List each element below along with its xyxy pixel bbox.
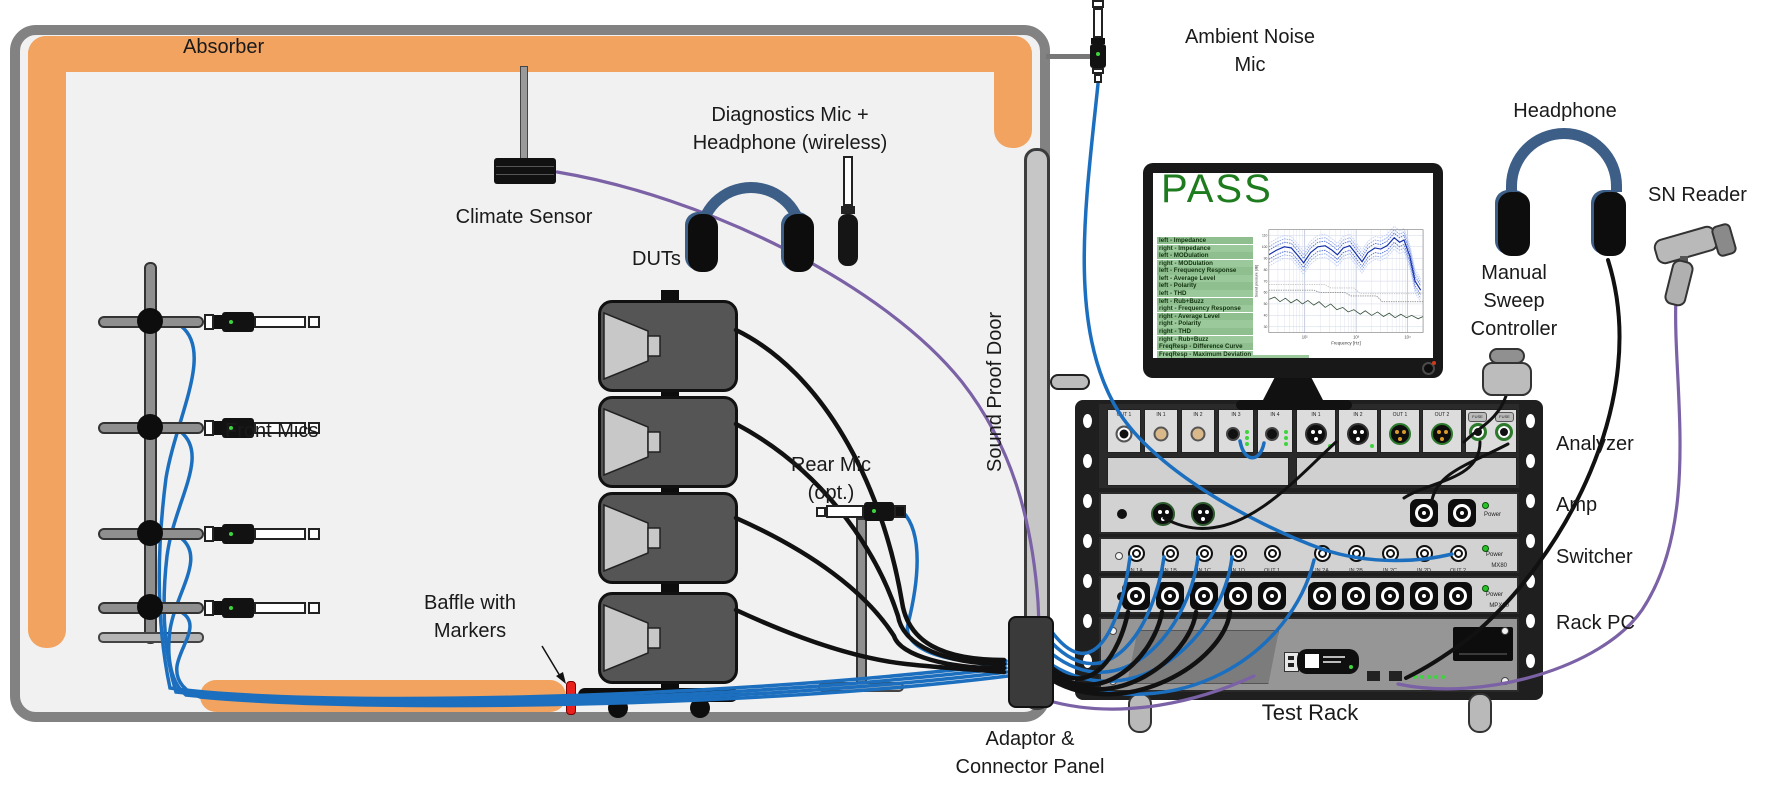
climate-sensor-label: Climate Sensor (440, 204, 608, 230)
baffle-label-line1: Baffle with (408, 590, 532, 616)
amp-power-knob (1117, 509, 1127, 519)
dut-speaker-4 (598, 592, 738, 684)
analyzer-module-group-left: OUT 1 IN 1 IN 2 IN 3 IN 4 (1107, 409, 1293, 453)
rack-foot-right (1468, 693, 1492, 733)
svg-text:30: 30 (1264, 325, 1268, 329)
switcher-b-power-label: Power (1486, 592, 1503, 598)
switcher-a-power-label: Power (1486, 552, 1503, 558)
bnc-port-strip: IN 1AIN 1BIN 1CIN 1DOUT 1IN 2AIN 2BIN 2C… (1119, 545, 1475, 574)
analyzer-blank-plate (1107, 457, 1289, 486)
switcher-a-model: MX80 (1491, 563, 1507, 569)
operator-headphone-left-cup (1498, 192, 1530, 256)
speakon-connector (1342, 582, 1370, 610)
switcher-port: OUT 1 (1255, 545, 1289, 574)
monitor-stand-neck (1262, 378, 1324, 402)
front-mic-3 (98, 519, 328, 549)
adaptor-label-line2: Connector Panel (930, 754, 1130, 780)
front-mic-4 (98, 593, 328, 623)
sn-reader-label: SN Reader (1648, 182, 1747, 208)
result-chart: 1101009080706050403010²10³10⁴Frequency [… (1253, 225, 1429, 355)
fuse-label: FUSE (1468, 412, 1487, 422)
switcher-port-label: OUT 2 (1441, 568, 1475, 574)
switcher-port: IN 1D (1221, 545, 1255, 574)
pass-status: PASS (1161, 173, 1273, 212)
bnc-connector (1314, 545, 1331, 562)
switcher-b-power-led (1482, 585, 1489, 592)
diagnostics-headphone-left-cup (688, 214, 718, 272)
analyzer-module-out1: OUT 1 (1107, 409, 1141, 453)
ambient-mic-bracket (1046, 54, 1092, 59)
climate-sensor-box (494, 158, 556, 184)
analyzer-label: Analyzer (1556, 431, 1634, 457)
front-mic-stand-foot (98, 632, 204, 643)
ambient-mic-label-line1: Ambient Noise (1160, 24, 1340, 50)
result-monitor: PASS left - Impedanceright - Impedancele… (1143, 163, 1443, 378)
duts-label: DUTs (632, 246, 681, 272)
monitor-screen: PASS left - Impedanceright - Impedancele… (1153, 173, 1433, 358)
usb-dongle (1297, 649, 1359, 674)
speakon-connector (1156, 582, 1184, 610)
speakon-connector (1224, 582, 1252, 610)
analyzer-row: OUT 1 IN 1 IN 2 IN 3 IN 4 (1099, 404, 1519, 488)
switcher-port: IN 1B (1153, 545, 1187, 574)
svg-text:60: 60 (1264, 291, 1268, 295)
amp-speakon-2 (1448, 499, 1476, 527)
fuse-label: FUSE (1495, 412, 1514, 422)
diagnostics-headphone-right-cup (784, 214, 814, 272)
test-setup-diagram: Absorber Sound Proof Door Front Mics Cli… (0, 0, 1783, 810)
pc-port (1389, 671, 1402, 681)
baffle-marker (566, 681, 576, 715)
svg-text:90: 90 (1264, 256, 1268, 260)
svg-text:100: 100 (1262, 245, 1268, 249)
analyzer-xlr-in2: IN 2 (1338, 409, 1378, 453)
manual-label-line2: Sweep (1440, 288, 1588, 314)
analyzer-module-in4: IN 4 (1257, 409, 1293, 453)
svg-text:110: 110 (1262, 234, 1267, 238)
analyzer-module-group-xlr: IN 1 IN 2 OUT 1 (1296, 409, 1462, 453)
speakon-connector (1308, 582, 1336, 610)
svg-text:Frequency [Hz]: Frequency [Hz] (1331, 340, 1360, 345)
switcher-row-bnc: IN 1AIN 1BIN 1CIN 1DOUT 1IN 2AIN 2BIN 2C… (1099, 537, 1519, 573)
svg-text:40: 40 (1264, 314, 1268, 318)
speakon-connector (1410, 582, 1438, 610)
svg-text:10³: 10³ (1353, 334, 1360, 339)
front-mics-label: Front Mics (225, 418, 318, 444)
manual-label-line3: Controller (1440, 316, 1588, 342)
bnc-connector (1162, 545, 1179, 562)
bnc-connector (1382, 545, 1399, 562)
operator-headphone-icon (1506, 128, 1622, 192)
amp-power-label: Power (1484, 512, 1501, 518)
bnc-connector (1348, 545, 1365, 562)
absorber-right-corner (994, 36, 1032, 148)
front-mic-1 (98, 307, 328, 337)
bnc-connector (1230, 545, 1247, 562)
amp-row: Power (1099, 492, 1519, 534)
analyzer-xlr-in1: IN 1 (1296, 409, 1336, 453)
amp-speakon-1 (1410, 499, 1438, 527)
headphone-label: Headphone (1495, 98, 1635, 124)
switcher-port-label: OUT 1 (1255, 568, 1289, 574)
manual-sweep-controller-body (1482, 362, 1532, 396)
pc-port (1367, 671, 1380, 681)
switcher-port: IN 2B (1339, 545, 1373, 574)
ambient-noise-mic-icon (1088, 0, 1108, 86)
bnc-connector (1196, 545, 1213, 562)
bnc-connector (1264, 545, 1281, 562)
switcher-port: IN 1C (1187, 545, 1221, 574)
switcher-port-label: IN 1D (1221, 568, 1255, 574)
switcher-port: IN 2D (1407, 545, 1441, 574)
manual-label-line1: Manual (1440, 260, 1588, 286)
pc-recess (1127, 630, 1279, 684)
switcher-port: OUT 2 (1441, 545, 1475, 574)
switcher-port: IN 2C (1373, 545, 1407, 574)
adaptor-label-line1: Adaptor & (930, 726, 1130, 752)
ambient-mic-label-line2: Mic (1160, 52, 1340, 78)
switcher-port-label: IN 1C (1187, 568, 1221, 574)
monitor-stand-base (1236, 400, 1352, 410)
baffle-label-line2: Markers (408, 618, 532, 644)
door-label: Sound Proof Door (984, 232, 1007, 472)
dut-speaker-1 (598, 300, 738, 392)
rear-mic-label-line2: (opt.) (770, 480, 892, 506)
switcher-port: IN 2A (1305, 545, 1339, 574)
switcher-port-label: IN 2B (1339, 568, 1373, 574)
switcher-row-speakon: Power MPX80 (1099, 576, 1519, 614)
switcher-b-model: MPX80 (1489, 603, 1509, 609)
absorber-top (28, 36, 1032, 72)
svg-text:50: 50 (1264, 302, 1268, 306)
switcher-port-label: IN 2C (1373, 568, 1407, 574)
diagnostics-mic-barrel (843, 156, 853, 206)
analyzer-blank-plate (1296, 457, 1517, 486)
bnc-connector (1416, 545, 1433, 562)
analyzer-xlr-out1: OUT 1 (1380, 409, 1420, 453)
switcher-port: IN 1A (1119, 545, 1153, 574)
test-rack-label: Test Rack (1230, 700, 1390, 726)
sn-reader-icon (1652, 220, 1752, 310)
adaptor-connector-panel (1008, 616, 1054, 708)
speakon-connector (1190, 582, 1218, 610)
operator-headphone-right-cup (1594, 192, 1626, 256)
svg-text:Sound pressure [dB]: Sound pressure [dB] (1254, 265, 1258, 297)
speakon-connector (1376, 582, 1404, 610)
monitor-power-led (1432, 361, 1436, 365)
amp-label: Amp (1556, 492, 1597, 518)
absorber-bottom (200, 680, 566, 712)
switcher-a-power-led (1482, 545, 1489, 552)
door-handle (1050, 374, 1090, 390)
rack-pc-row (1099, 617, 1519, 692)
dut-speaker-2 (598, 396, 738, 488)
svg-text:10⁴: 10⁴ (1404, 334, 1411, 339)
bnc-connector (1128, 545, 1145, 562)
diagnostics-mic-ring (841, 206, 855, 214)
rear-mic-stand-pole (856, 518, 867, 686)
rear-mic-label-line1: Rear Mic (770, 452, 892, 478)
svg-text:80: 80 (1264, 268, 1268, 272)
diagnostics-mic-capsule (838, 214, 858, 266)
rack-pc-label: Rack PC (1556, 610, 1635, 636)
diag-label-line1: Diagnostics Mic + (655, 102, 925, 128)
analyzer-module-in1: IN 1 (1144, 409, 1178, 453)
climate-sensor-stick (520, 66, 528, 164)
dut-cart (578, 688, 738, 702)
analyzer-module-in3: IN 3 (1218, 409, 1254, 453)
speakon-port-strip (1119, 582, 1475, 615)
analyzer-xlr-out2: OUT 2 (1422, 409, 1462, 453)
absorber-left (28, 36, 66, 648)
speakon-connector (1258, 582, 1286, 610)
monitor-power-button (1422, 362, 1435, 375)
switcher-port-label: IN 2D (1407, 568, 1441, 574)
test-rack: OUT 1 IN 1 IN 2 IN 3 IN 4 (1075, 400, 1543, 700)
switcher-label: Switcher (1556, 544, 1633, 570)
amp-xlr-2 (1191, 502, 1215, 526)
speakon-connector (1444, 582, 1472, 610)
analyzer-module-speakon: FUSE FUSE (1465, 409, 1517, 453)
switcher-port-label: IN 1A (1119, 568, 1153, 574)
svg-text:70: 70 (1264, 279, 1268, 283)
dut-speaker-3 (598, 492, 738, 584)
amp-xlr-1 (1151, 502, 1175, 526)
rear-mic-stand-foot (818, 682, 904, 692)
switcher-port-label: IN 1B (1153, 568, 1187, 574)
amp-power-led (1482, 502, 1489, 509)
speakon-connector (1122, 582, 1150, 610)
diag-label-line2: Headphone (wireless) (655, 130, 925, 156)
svg-text:10²: 10² (1302, 334, 1309, 339)
analyzer-module-in2: IN 2 (1181, 409, 1215, 453)
absorber-label: Absorber (183, 34, 264, 60)
bnc-connector (1450, 545, 1467, 562)
rack-foot-left (1128, 693, 1152, 733)
switcher-port-label: IN 2A (1305, 568, 1339, 574)
